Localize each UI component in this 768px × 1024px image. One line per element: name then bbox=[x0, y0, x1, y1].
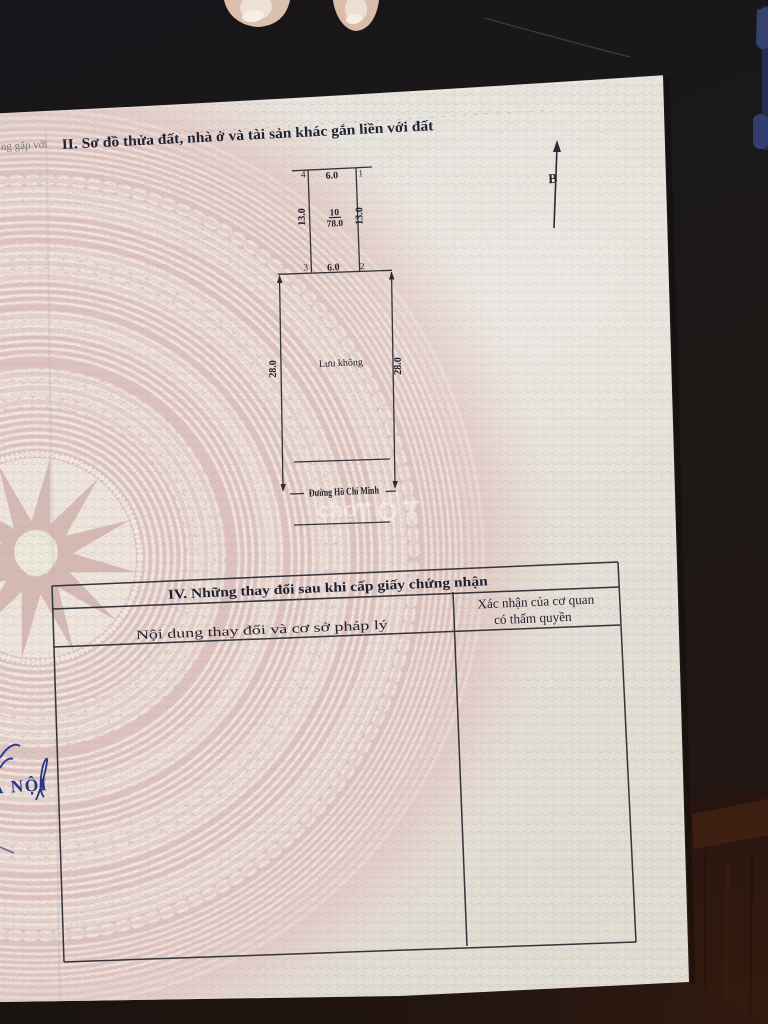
svg-text:1: 1 bbox=[358, 169, 364, 179]
svg-text:B: B bbox=[548, 171, 558, 186]
svg-text:78.0: 78.0 bbox=[326, 219, 343, 230]
svg-text:ng gặp với: ng gặp với bbox=[1, 139, 48, 153]
svg-text:TỐT: TỐT bbox=[355, 493, 425, 528]
svg-text:6.0: 6.0 bbox=[327, 262, 340, 274]
svg-text:28.0: 28.0 bbox=[268, 360, 279, 378]
svg-text:2: 2 bbox=[360, 262, 366, 272]
svg-text:13.0: 13.0 bbox=[297, 208, 308, 226]
svg-text:28.0: 28.0 bbox=[393, 357, 404, 375]
svg-text:6.0: 6.0 bbox=[325, 170, 338, 182]
svg-text:Lưu không: Lưu không bbox=[319, 357, 363, 370]
svg-text:3: 3 bbox=[303, 263, 309, 273]
svg-text:chợ: chợ bbox=[317, 496, 360, 523]
svg-text:13.0: 13.0 bbox=[355, 207, 366, 225]
svg-text:4: 4 bbox=[301, 170, 307, 180]
